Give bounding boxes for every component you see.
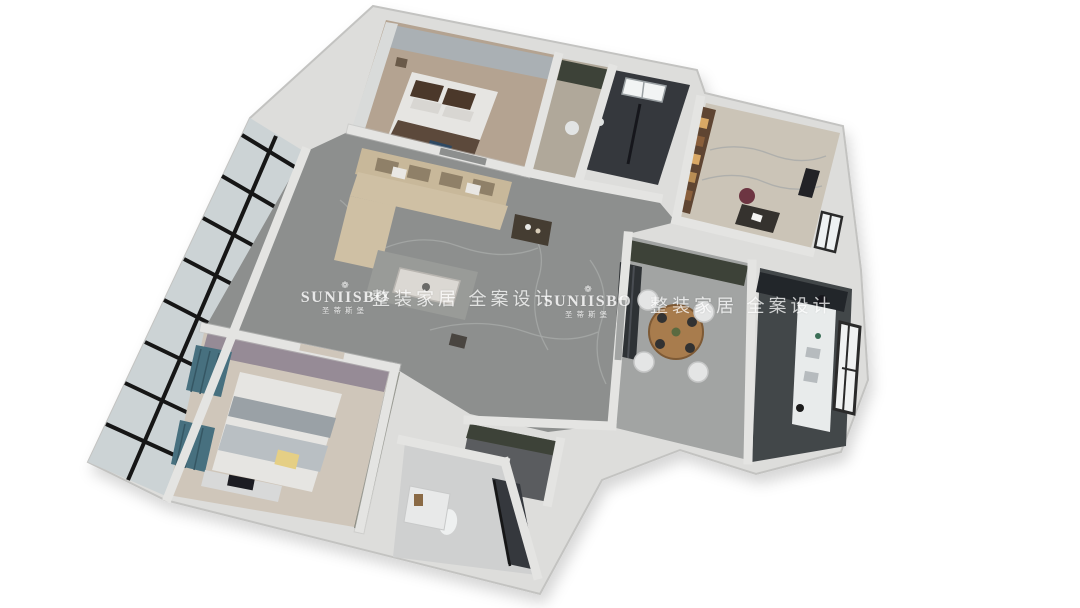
room-dining [614,236,752,460]
kitchen-counter [792,302,836,432]
brand-chinese: 圣蒂斯堡 [527,311,649,319]
kitchen-dish [815,333,821,339]
brand-name: SUNIISBO [527,294,649,311]
bath1-vanity [404,486,450,530]
hall-console-vase [536,229,541,234]
bath1-vanity-decor [414,494,423,506]
cloakroom-chair [565,121,579,135]
hall-console-vase [525,224,531,230]
kitchen-faucet-icon [796,404,804,412]
study-chair [739,188,755,204]
watermark-brand: ❁ SUNIISBO 圣蒂斯堡 [527,285,649,319]
watermark-tagline: 整装家居 全案设计 [650,292,835,318]
dining-centerpiece [672,328,681,337]
floorplan-render: ❁ SUNIISBO 圣蒂斯堡 整装家居 全案设计 ❁ SUNIISBO 圣蒂斯… [0,0,1080,608]
